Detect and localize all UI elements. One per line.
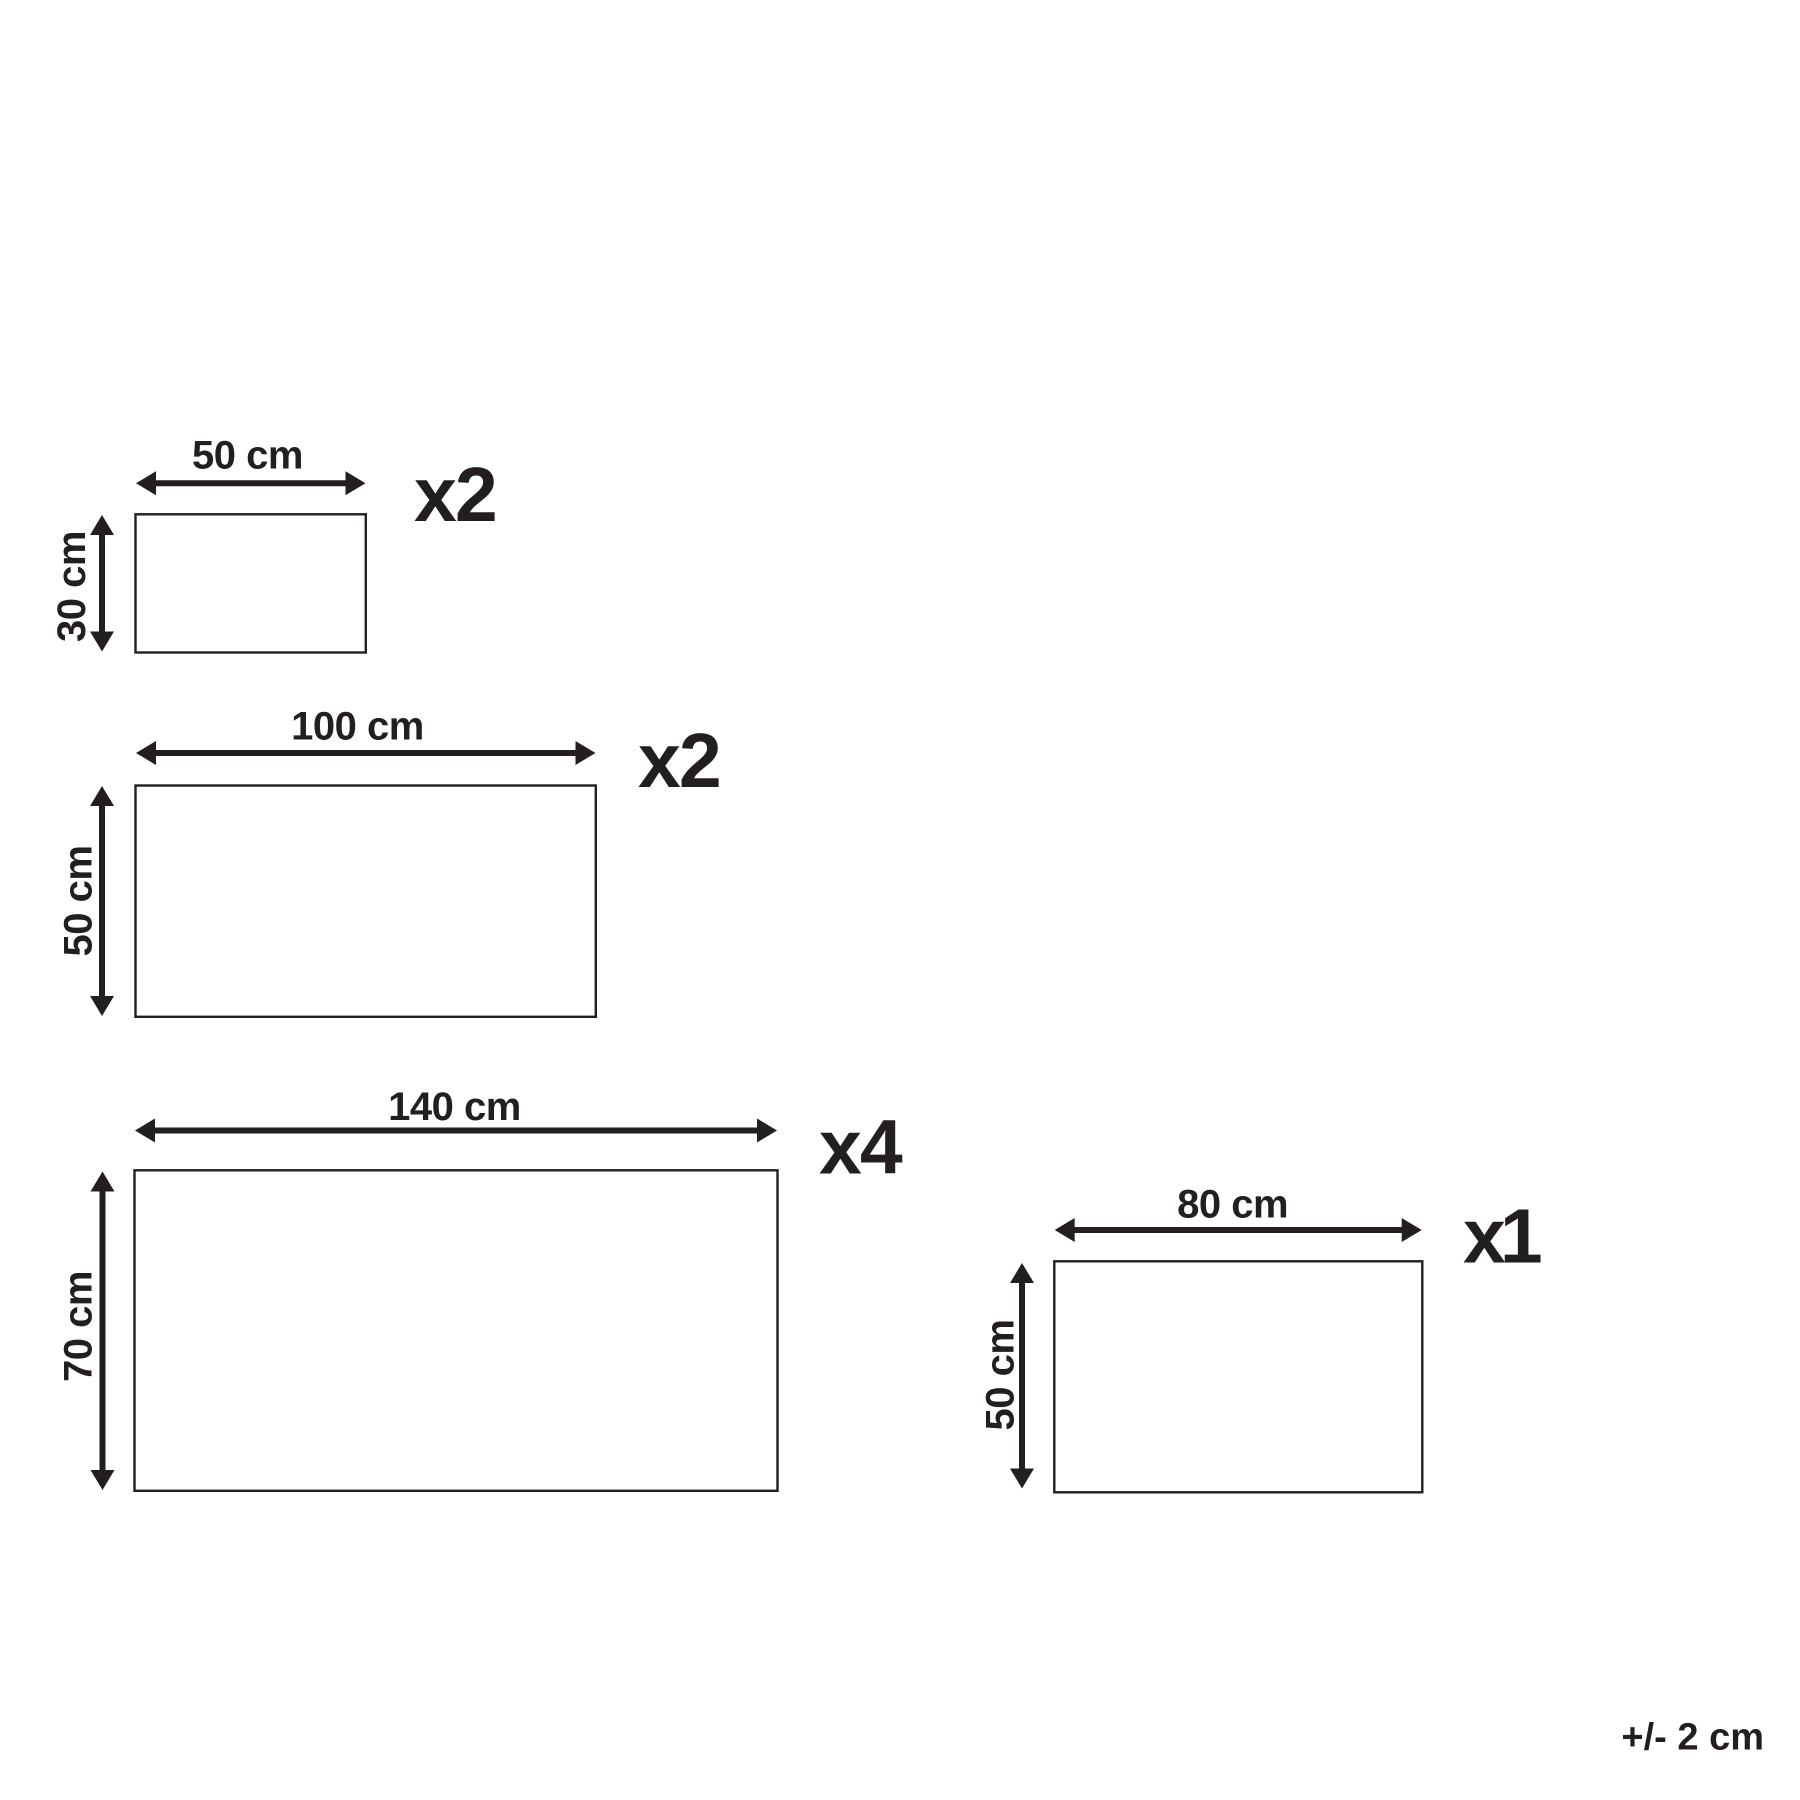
svg-text:50 cm: 50 cm [192,434,303,478]
svg-text:+/- 2 cm: +/- 2 cm [1621,1717,1764,1759]
svg-text:50 cm: 50 cm [979,1320,1023,1431]
svg-text:100 cm: 100 cm [291,705,424,749]
svg-text:80 cm: 80 cm [1177,1183,1288,1227]
svg-text:x2: x2 [638,718,720,804]
svg-text:50 cm: 50 cm [57,846,101,957]
svg-text:140 cm: 140 cm [388,1085,521,1129]
svg-text:30 cm: 30 cm [50,531,94,642]
svg-text:x1: x1 [1463,1194,1541,1280]
svg-text:x2: x2 [414,452,496,538]
svg-text:x4: x4 [819,1104,903,1190]
svg-text:70 cm: 70 cm [57,1271,101,1382]
